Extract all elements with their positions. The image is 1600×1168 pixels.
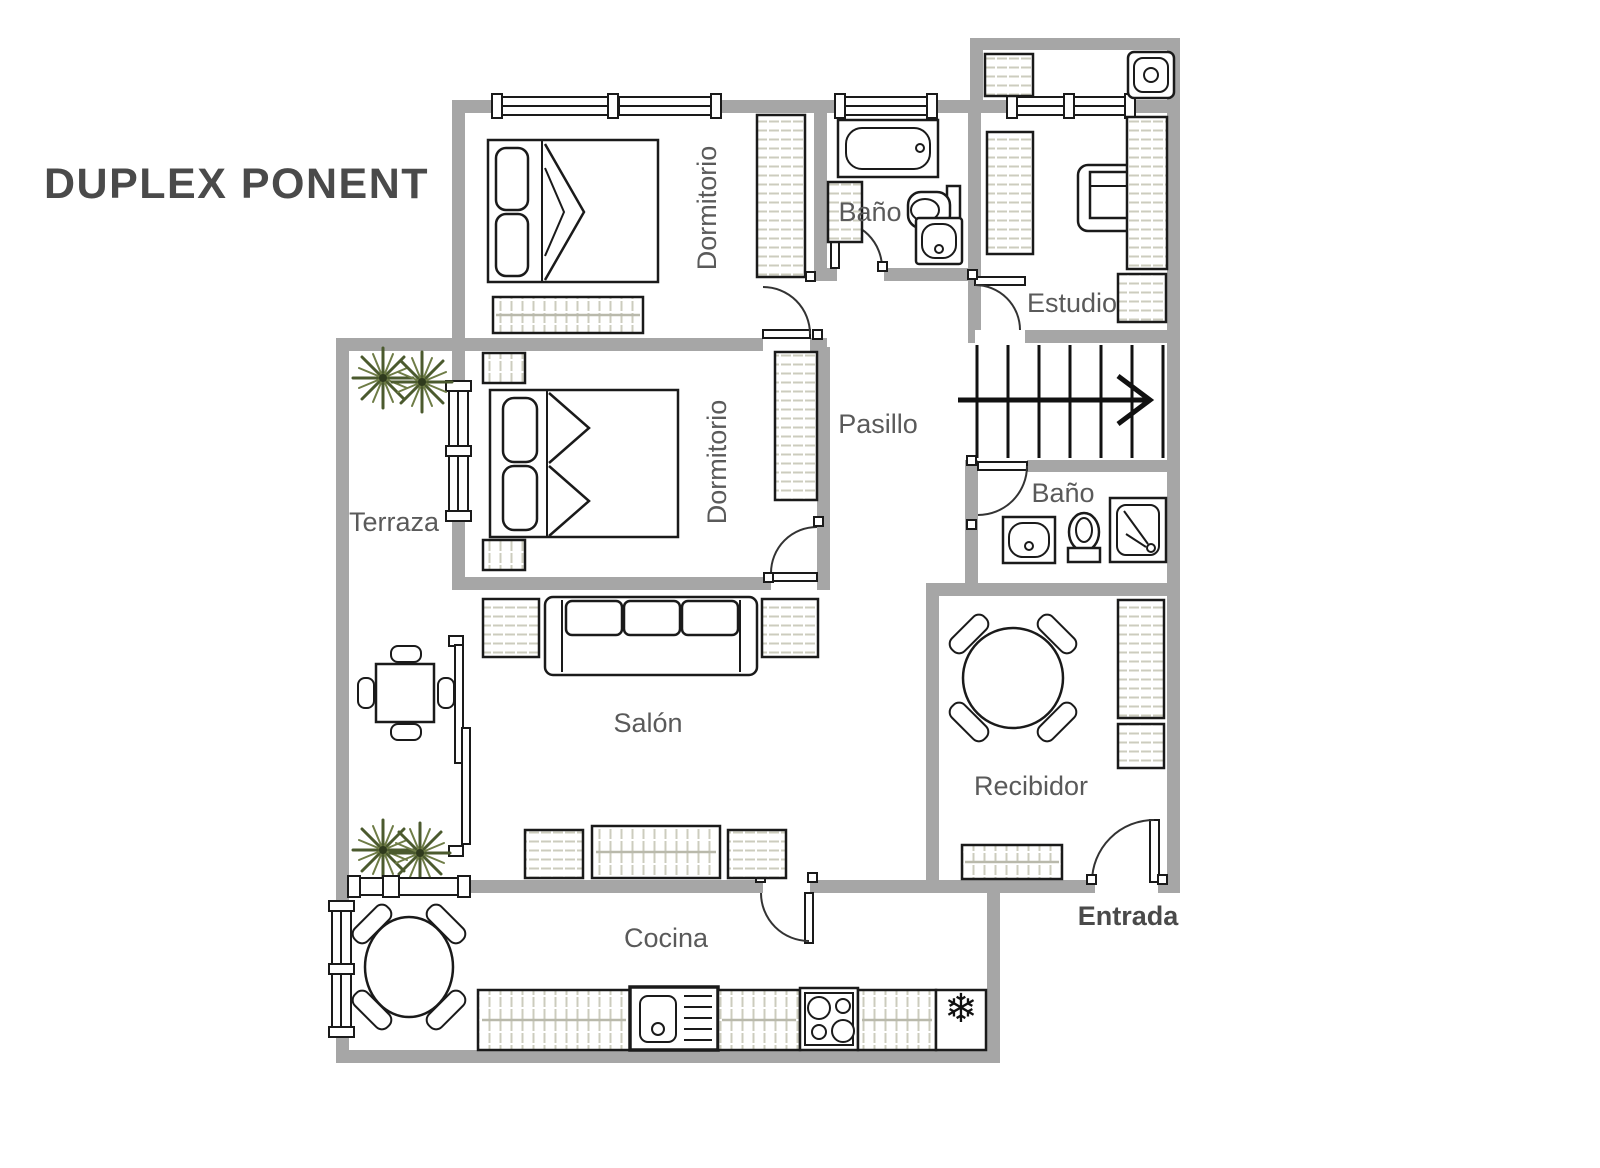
sofa-3-seat — [545, 597, 757, 675]
counter — [478, 990, 630, 1050]
wardrobe — [757, 115, 805, 277]
room-label-bano-1: Baño — [838, 197, 901, 227]
snowflake-icon: ❄ — [944, 986, 978, 1032]
wardrobe — [1118, 600, 1164, 718]
dresser — [483, 540, 525, 570]
bathtub — [838, 120, 938, 177]
plant-icon — [392, 352, 452, 412]
room-label-estudio: Estudio — [1027, 288, 1117, 318]
room-bano-2: Baño — [1003, 478, 1166, 563]
dresser — [493, 297, 643, 333]
stairs — [958, 345, 1163, 458]
radiator — [962, 845, 1062, 879]
door-dormitorio1 — [763, 272, 822, 339]
laundry-sink — [1128, 52, 1174, 98]
dresser — [985, 54, 1033, 96]
toilet — [1068, 513, 1100, 562]
wardrobe — [1127, 117, 1167, 269]
room-bano-1: Baño — [828, 120, 962, 264]
window-cocina — [329, 901, 354, 1037]
side-cabinet — [762, 599, 818, 657]
wardrobe — [775, 352, 817, 500]
window-dormitorio2 — [446, 381, 471, 521]
room-cocina: Cocina ❄ — [349, 901, 986, 1050]
room-estudio: Estudio — [987, 117, 1167, 322]
doors — [756, 221, 1167, 943]
room-top-right — [985, 52, 1174, 98]
counter — [858, 990, 936, 1050]
plant-icon — [390, 823, 450, 883]
room-label-pasillo: Pasillo — [838, 409, 918, 439]
room-label-terraza: Terraza — [349, 507, 440, 537]
washbasin — [916, 218, 962, 264]
double-bed — [490, 390, 678, 537]
double-bed — [488, 140, 658, 282]
page-title: DUPLEX PONENT — [44, 160, 429, 208]
dresser — [483, 353, 525, 383]
sliding-door-terraza-salon — [449, 636, 470, 856]
room-salon: Salón — [483, 597, 818, 878]
wardrobe — [987, 132, 1033, 254]
side-cabinet — [483, 599, 539, 657]
dresser — [1118, 274, 1166, 322]
door-cocina — [756, 873, 817, 943]
cabinet — [728, 830, 786, 878]
floor-plan-canvas: DUPLEX PONENT — [0, 0, 1600, 1168]
window-dormitorio1-a — [492, 94, 618, 118]
shower — [1110, 498, 1166, 562]
window-dormitorio1-b — [619, 94, 721, 118]
window-bano1 — [835, 94, 937, 118]
window-estudio — [1007, 94, 1135, 118]
square-table — [358, 646, 454, 740]
room-dormitorio-2: Dormitorio — [483, 352, 817, 570]
stove-hob — [800, 988, 858, 1050]
room-dormitorio-1: Dormitorio — [488, 115, 805, 333]
door-entrada — [1087, 820, 1167, 884]
room-label-dormitorio-2: Dormitorio — [702, 400, 732, 525]
room-label-cocina: Cocina — [624, 923, 709, 953]
stairs-direction-arrow — [958, 376, 1150, 424]
floor-plan-page: DUPLEX PONENT — [0, 0, 1600, 1168]
planter-box — [348, 876, 470, 897]
round-table — [946, 611, 1079, 744]
kitchen-sink — [630, 987, 718, 1050]
room-label-bano-2: Baño — [1031, 478, 1094, 508]
label-entrada: Entrada — [1078, 901, 1180, 931]
refrigerator: ❄ — [936, 986, 986, 1050]
cabinet — [525, 830, 583, 878]
radiator — [592, 826, 720, 878]
room-label-recibidor: Recibidor — [974, 771, 1088, 801]
cabinet — [1118, 724, 1164, 768]
counter — [718, 990, 800, 1050]
round-table — [349, 901, 468, 1032]
door-dormitorio2 — [764, 517, 823, 582]
washbasin — [1003, 517, 1055, 563]
room-label-dormitorio-1: Dormitorio — [692, 146, 722, 271]
room-label-salon: Salón — [613, 708, 682, 738]
